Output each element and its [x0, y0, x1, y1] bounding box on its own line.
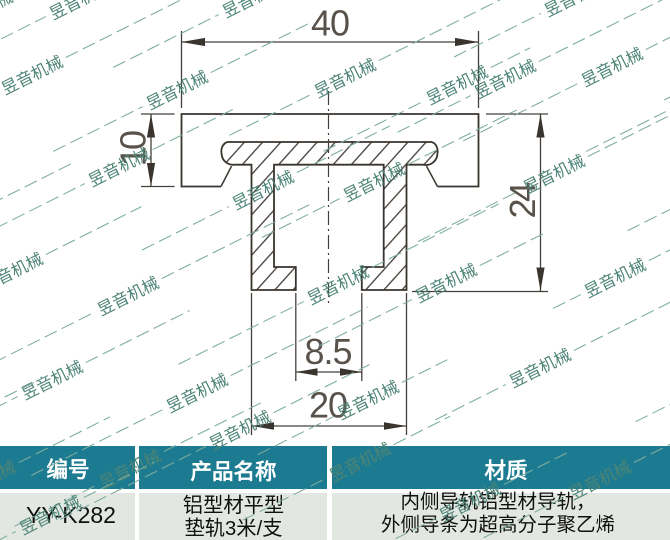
svg-text:40: 40	[311, 3, 349, 44]
svg-text:24: 24	[502, 183, 543, 219]
svg-text:10: 10	[113, 131, 154, 167]
svg-text:20: 20	[309, 385, 347, 426]
svg-text:8.5: 8.5	[304, 331, 351, 372]
